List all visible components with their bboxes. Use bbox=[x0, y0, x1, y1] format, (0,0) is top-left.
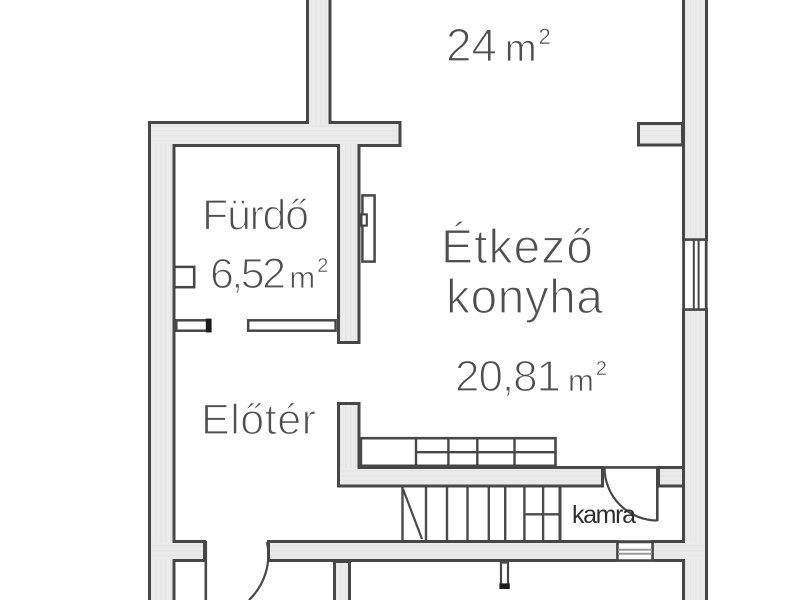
svg-text:Étkező: Étkező bbox=[441, 221, 593, 274]
svg-text:Előtér: Előtér bbox=[201, 396, 316, 444]
svg-text:Fürdő: Fürdő bbox=[202, 192, 309, 240]
svg-text:konyha: konyha bbox=[446, 271, 603, 324]
svg-text:kamra: kamra bbox=[572, 501, 636, 529]
